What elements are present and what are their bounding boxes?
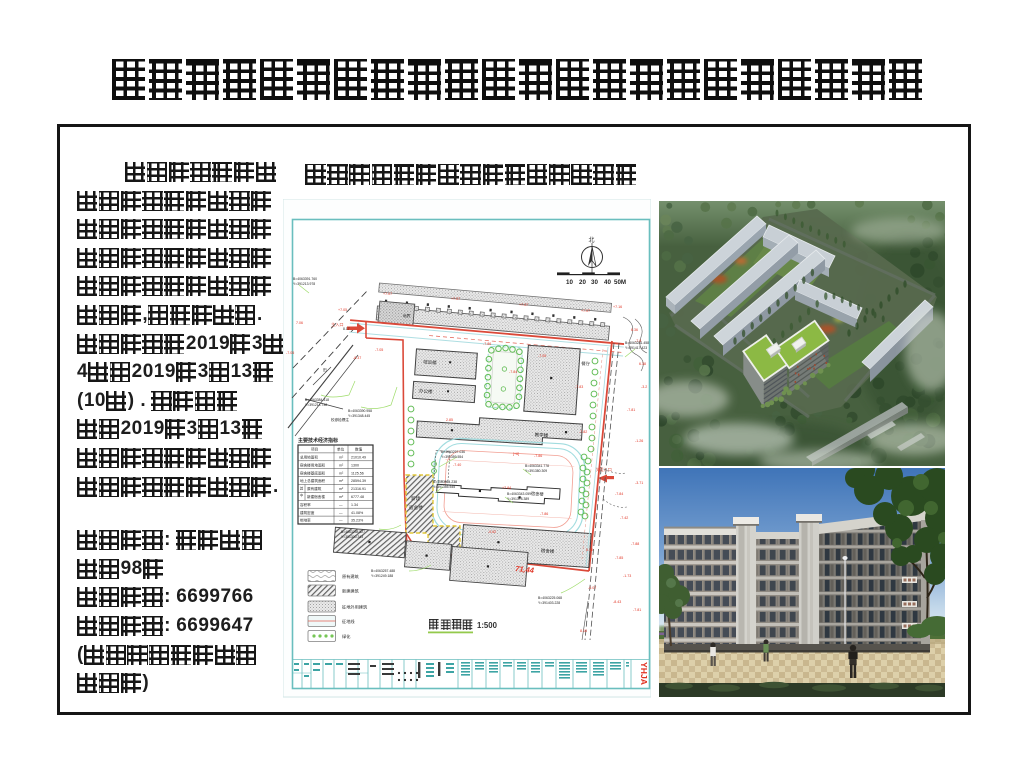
svg-text:-7.82: -7.82 xyxy=(579,430,587,434)
svg-text:-1.26: -1.26 xyxy=(635,439,643,443)
svg-text:+7.16: +7.16 xyxy=(613,305,622,309)
svg-text:-7.05: -7.05 xyxy=(375,348,383,352)
svg-text:-0.07: -0.07 xyxy=(588,586,596,590)
svg-text:Y=391348.445: Y=391348.445 xyxy=(348,414,370,418)
svg-text:-7.86: -7.86 xyxy=(540,512,548,516)
svg-text:+7.07: +7.07 xyxy=(519,303,528,307)
svg-text:B=4063225.068: B=4063225.068 xyxy=(538,596,562,600)
svg-text:地界: 地界 xyxy=(403,313,411,318)
svg-text:B=4063384.318: B=4063384.318 xyxy=(305,398,329,402)
svg-text:-7.85: -7.85 xyxy=(615,556,623,560)
svg-text:2.85: 2.85 xyxy=(446,418,453,422)
svg-text:B=4063257.488: B=4063257.488 xyxy=(371,569,395,573)
svg-text:[+6]: [+6] xyxy=(513,452,519,456)
svg-text:7.06: 7.06 xyxy=(296,321,303,325)
svg-text:8.17: 8.17 xyxy=(343,327,350,331)
svg-text:-7.84: -7.84 xyxy=(615,492,623,496)
svg-text:-7.83: -7.83 xyxy=(575,385,583,389)
svg-text:田: 田 xyxy=(323,368,327,372)
svg-text:-7.86: -7.86 xyxy=(534,454,542,458)
svg-text:Y=391213.978: Y=391213.978 xyxy=(293,282,315,286)
svg-text:-7.84: -7.84 xyxy=(509,370,517,374)
svg-text:+7.84: +7.84 xyxy=(502,486,511,490)
svg-text:B=4063390.958: B=4063390.958 xyxy=(348,409,372,413)
svg-text:-7.81: -7.81 xyxy=(627,408,635,412)
svg-text:Y=391378.389: Y=391378.389 xyxy=(507,497,529,501)
svg-text:Y=391300.343: Y=391300.343 xyxy=(341,535,363,539)
svg-text:Y=391417.423: Y=391417.423 xyxy=(625,346,647,350)
svg-text:-1.73: -1.73 xyxy=(623,574,631,578)
svg-text:-7.40: -7.40 xyxy=(453,463,461,467)
svg-text:B=4063258.527: B=4063258.527 xyxy=(341,530,365,534)
svg-text:-7.81: -7.81 xyxy=(633,608,641,612)
svg-text:-7.86: -7.86 xyxy=(483,342,491,346)
svg-text:Y=391403.228: Y=391403.228 xyxy=(538,601,560,605)
svg-text:-7.88: -7.88 xyxy=(631,542,639,546)
svg-text:YHJA: YHJA xyxy=(639,662,649,685)
svg-text:Y=391214.738: Y=391214.738 xyxy=(305,403,327,407)
svg-text:Y=391359.554: Y=391359.554 xyxy=(441,455,463,459)
svg-text:-3.2: -3.2 xyxy=(641,385,647,389)
svg-text:B=4063343.059: B=4063343.059 xyxy=(507,492,531,496)
svg-text:B=4063297.036: B=4063297.036 xyxy=(441,450,465,454)
svg-text:-3.71: -3.71 xyxy=(635,481,643,485)
svg-text:-0.62: -0.62 xyxy=(488,530,496,534)
svg-text:B=4063281.458: B=4063281.458 xyxy=(625,341,649,345)
svg-text:+7.07: +7.07 xyxy=(581,309,590,313)
svg-text:+7.07: +7.07 xyxy=(383,292,392,296)
svg-text:6.38: 6.38 xyxy=(639,362,646,366)
svg-text:6.36: 6.36 xyxy=(631,328,638,332)
svg-text:校参检標注: 校参检標注 xyxy=(331,417,349,422)
svg-text:B=4063341.778: B=4063341.778 xyxy=(525,464,549,468)
svg-text:Y=391355.545: Y=391355.545 xyxy=(433,485,455,489)
svg-text:8.18: 8.18 xyxy=(586,548,593,552)
svg-text:B=4063364.238: B=4063364.238 xyxy=(433,480,457,484)
svg-text:-8.43: -8.43 xyxy=(613,600,621,604)
svg-text:-8.37: -8.37 xyxy=(353,356,361,360)
svg-text:Y=391380.309: Y=391380.309 xyxy=(525,469,547,473)
svg-text:B=4063391.760: B=4063391.760 xyxy=(293,277,317,281)
svg-text:8.16: 8.16 xyxy=(580,629,587,633)
svg-text:-7.05: -7.05 xyxy=(538,354,546,358)
svg-text:-7.42: -7.42 xyxy=(620,516,628,520)
svg-text:Y=391249.188: Y=391249.188 xyxy=(371,574,393,578)
svg-text:-7.05: -7.05 xyxy=(286,351,294,355)
svg-text:+7.05: +7.05 xyxy=(338,308,347,312)
svg-text:+7.07: +7.07 xyxy=(451,297,460,301)
